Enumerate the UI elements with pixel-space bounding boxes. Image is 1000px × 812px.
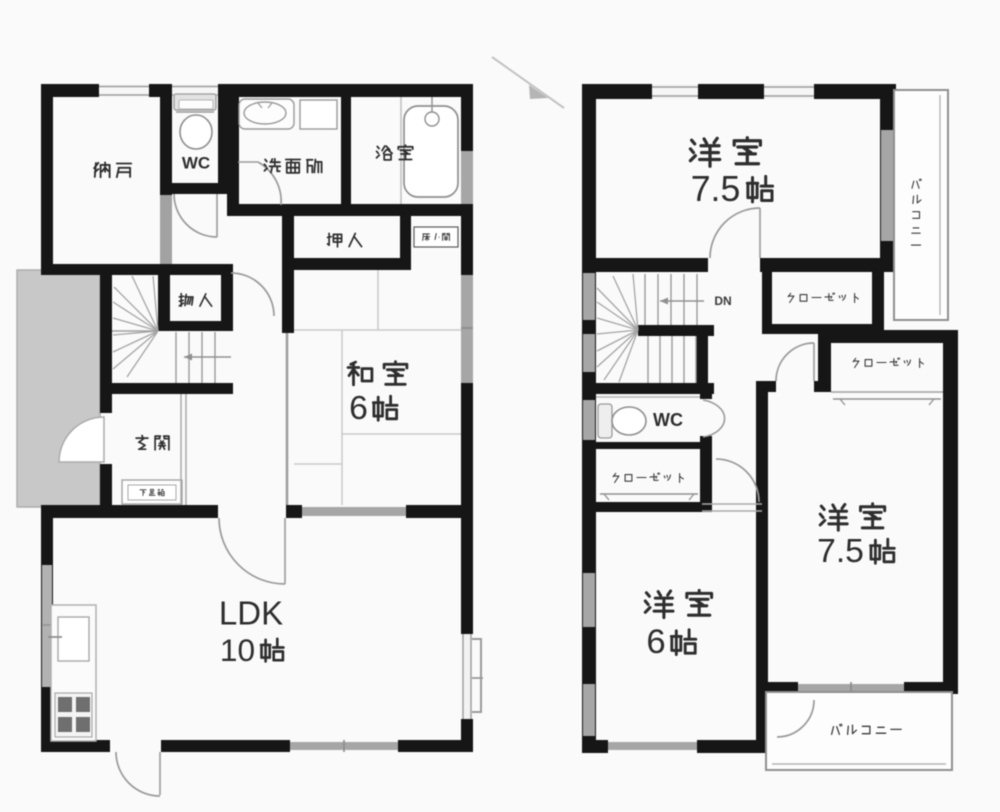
svg-text:7.5: 7.5 [691,169,741,209]
svg-text:6: 6 [349,389,368,427]
svg-text:WC: WC [182,154,210,173]
svg-text:WC: WC [653,410,683,430]
svg-text:DN: DN [714,294,731,308]
svg-text:LDK: LDK [219,595,283,632]
svg-text:6: 6 [646,623,665,661]
svg-text:10: 10 [220,632,255,668]
svg-text:7.5: 7.5 [817,532,864,570]
